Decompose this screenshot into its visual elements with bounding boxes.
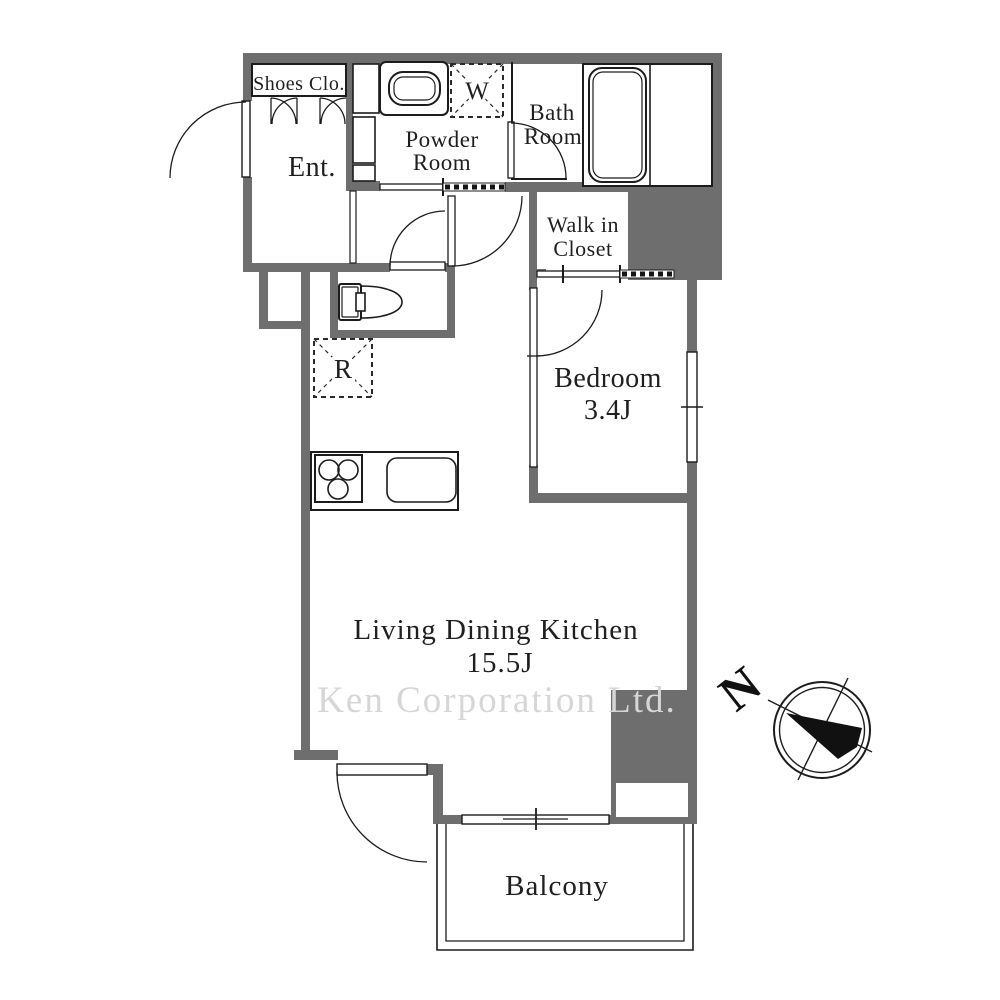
- balcony-sliding-door: [462, 808, 609, 830]
- balcony-label: Balcony: [505, 870, 609, 902]
- ldk-label: Living Dining Kitchen: [353, 614, 638, 646]
- compass-needle: [786, 713, 862, 759]
- entrance-step: [350, 191, 356, 263]
- bedroom-label: Bedroom: [554, 363, 662, 394]
- bath-unit: [583, 64, 712, 186]
- compass-north-label: N: [708, 655, 771, 721]
- bedroom-size: 3.4J: [584, 395, 632, 426]
- toilet-door: [390, 211, 445, 270]
- toilet: [339, 284, 402, 320]
- powder-room-label-2: Room: [413, 150, 471, 175]
- refrigerator-label: R: [334, 354, 352, 384]
- powder-sliding-door: [380, 178, 505, 196]
- watermark: Ken Corporation Ltd.: [317, 680, 677, 721]
- ldk-size: 15.5J: [466, 647, 533, 679]
- bath-room-label-2: Room: [524, 124, 582, 149]
- floor-plan-drawing: N Ken Corporation Ltd. Shoes Clo. Ent. P…: [0, 0, 1000, 1000]
- bedroom-window: [681, 352, 703, 462]
- walk-in-closet-label-2: Closet: [553, 236, 612, 261]
- washing-machine-label: W: [465, 78, 489, 105]
- entrance-label: Ent.: [288, 152, 336, 183]
- walk-in-closet-label-1: Walk in: [547, 212, 619, 237]
- powder-cabinets: [353, 64, 379, 181]
- hall-door: [448, 196, 522, 266]
- ldk-door: [337, 764, 427, 862]
- entrance-door: [170, 101, 250, 178]
- bath-room-label-1: Bath: [529, 100, 574, 125]
- powder-room-label-1: Powder: [405, 127, 478, 152]
- floor-plan: N Ken Corporation Ltd. Shoes Clo. Ent. P…: [0, 0, 1000, 1000]
- shaft-recess: [616, 783, 688, 817]
- kitchen-counter: [311, 452, 458, 510]
- compass: N: [708, 655, 872, 780]
- washbasin: [380, 62, 448, 115]
- shoes-closet-label: Shoes Clo.: [253, 73, 345, 95]
